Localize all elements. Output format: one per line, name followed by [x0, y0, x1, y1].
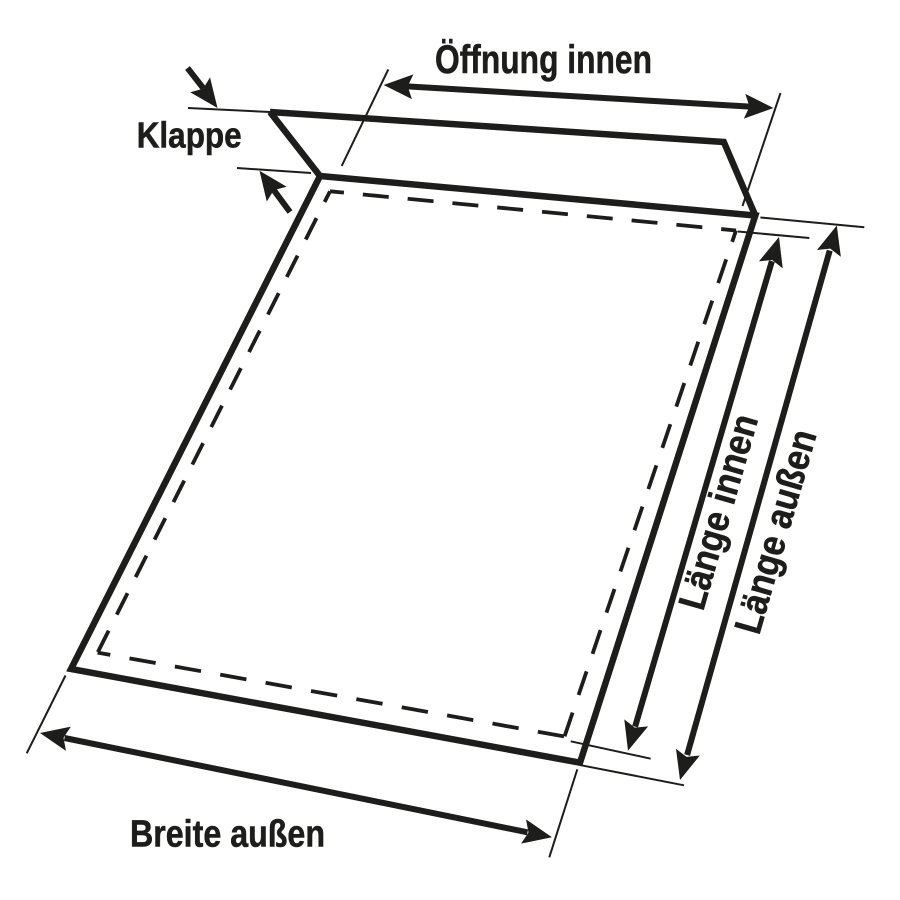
svg-text:Klappe: Klappe — [137, 115, 242, 156]
svg-text:Öffnung innen: Öffnung innen — [435, 37, 652, 82]
svg-text:Breite außen: Breite außen — [130, 814, 325, 856]
